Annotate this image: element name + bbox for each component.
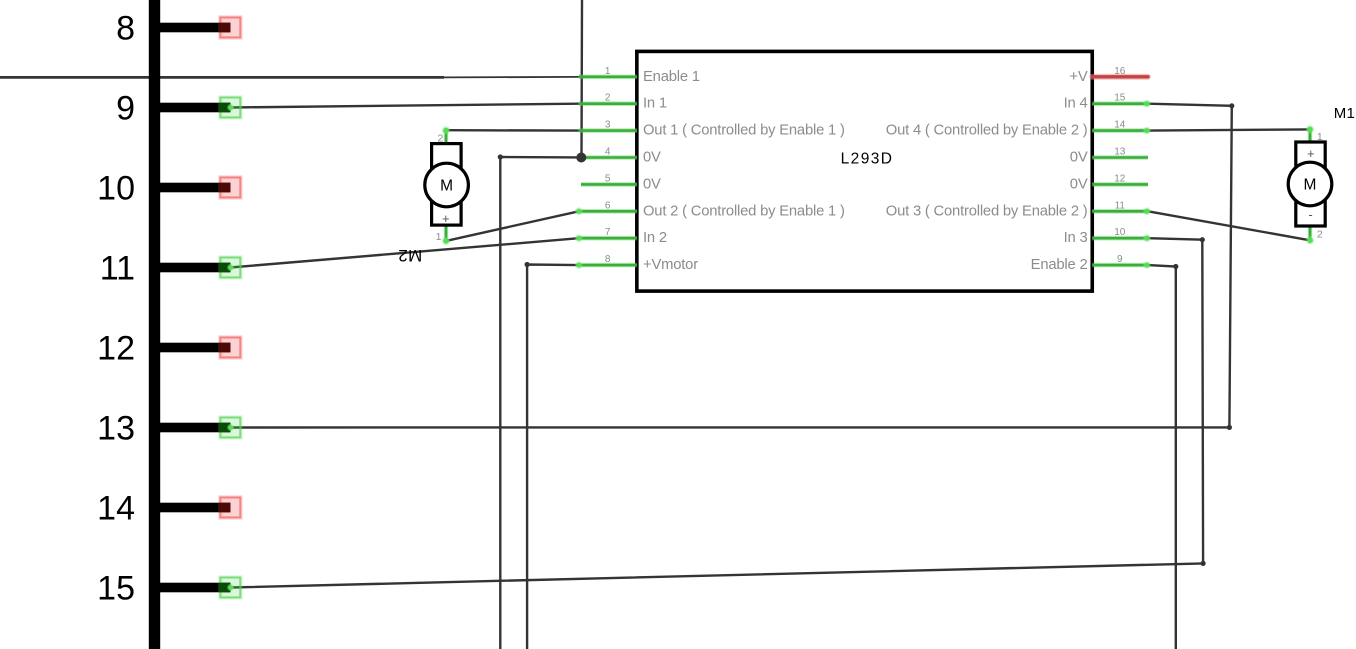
svg-text:0V: 0V	[643, 150, 661, 166]
svg-text:Out 3 ( Controlled by Enable 2: Out 3 ( Controlled by Enable 2 )	[886, 203, 1088, 219]
svg-text:In 1: In 1	[643, 96, 667, 112]
svg-text:L293D: L293D	[841, 151, 894, 168]
svg-text:12: 12	[1114, 173, 1126, 184]
svg-text:14: 14	[97, 490, 135, 528]
svg-text:9: 9	[1117, 254, 1123, 265]
svg-text:9: 9	[116, 90, 135, 128]
svg-text:M: M	[440, 178, 453, 195]
svg-text:M: M	[1304, 177, 1317, 194]
svg-text:11: 11	[1115, 200, 1126, 211]
svg-text:10: 10	[1114, 227, 1126, 238]
svg-text:Enable 1: Enable 1	[643, 69, 700, 85]
svg-text:0V: 0V	[643, 176, 661, 192]
svg-text:Out 1 ( Controlled by Enable 1: Out 1 ( Controlled by Enable 1 )	[643, 123, 845, 139]
svg-text:15: 15	[97, 570, 135, 608]
svg-text:14: 14	[1114, 120, 1126, 131]
svg-text:1: 1	[436, 231, 442, 243]
svg-text:2: 2	[1317, 229, 1323, 241]
svg-text:0V: 0V	[1070, 176, 1088, 192]
svg-text:-: -	[1308, 207, 1312, 222]
svg-text:1: 1	[605, 66, 611, 77]
svg-text:12: 12	[97, 330, 135, 368]
svg-text:8: 8	[116, 10, 135, 48]
svg-text:11: 11	[100, 250, 135, 288]
svg-text:5: 5	[605, 173, 611, 184]
svg-text:0V: 0V	[1070, 150, 1088, 166]
svg-text:M1: M1	[1334, 105, 1355, 122]
svg-text:Enable 2: Enable 2	[1031, 257, 1088, 273]
svg-text:2: 2	[437, 133, 443, 145]
svg-text:In 2: In 2	[643, 230, 667, 246]
svg-text:8: 8	[605, 254, 611, 265]
svg-text:Out 2 ( Controlled by Enable 1: Out 2 ( Controlled by Enable 1 )	[643, 203, 845, 219]
svg-text:1: 1	[1317, 131, 1323, 143]
svg-text:Out 4 ( Controlled by Enable 2: Out 4 ( Controlled by Enable 2 )	[886, 123, 1088, 139]
svg-text:+: +	[1307, 146, 1315, 161]
svg-text:13: 13	[1114, 147, 1126, 158]
svg-text:6: 6	[605, 200, 611, 211]
svg-text:M2: M2	[398, 246, 422, 265]
svg-text:+Vmotor: +Vmotor	[643, 257, 698, 273]
svg-text:+V: +V	[1069, 69, 1087, 85]
svg-text:15: 15	[1114, 93, 1126, 104]
svg-text:4: 4	[605, 147, 611, 158]
svg-text:In 3: In 3	[1064, 230, 1088, 246]
svg-text:13: 13	[97, 410, 135, 448]
svg-text:+: +	[442, 211, 450, 226]
svg-text:7: 7	[605, 227, 611, 238]
svg-text:10: 10	[97, 170, 135, 208]
svg-text:In 4: In 4	[1064, 96, 1088, 112]
svg-text:16: 16	[1114, 66, 1126, 77]
svg-text:2: 2	[605, 93, 611, 104]
svg-text:3: 3	[605, 120, 611, 131]
